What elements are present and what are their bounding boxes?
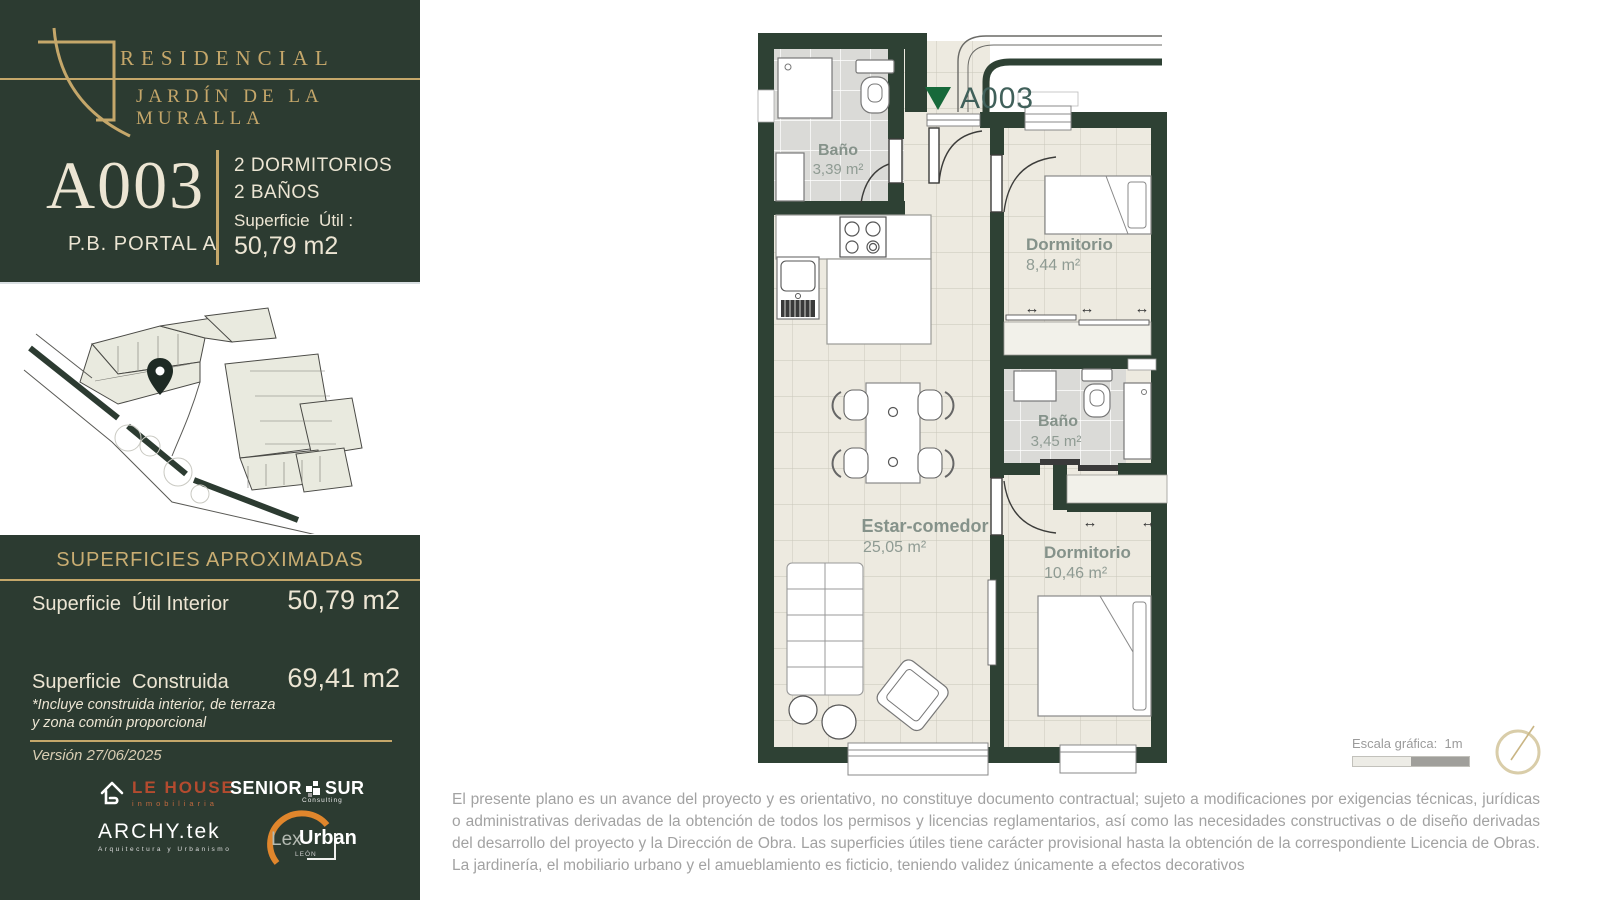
unit-code: A003 <box>46 146 205 225</box>
marker-label: A003 <box>960 82 1034 115</box>
unit-bathrooms: 2 BAÑOS <box>234 182 320 204</box>
unit-portal: P.B. PORTAL A <box>68 233 217 256</box>
site-plan-map <box>0 286 420 534</box>
archytek-sub: Arquitectura y Urbanismo <box>98 846 231 853</box>
lexurban-sub: LEÓN <box>295 851 317 858</box>
svg-text:↔: ↔ <box>1080 300 1095 317</box>
room-bed2-area: 10,46 m² <box>1044 565 1108 582</box>
unit-bedrooms: 2 DORMITORIOS <box>234 155 392 177</box>
room-bed1-name: Dormitorio <box>1026 235 1113 254</box>
scale-bar <box>1352 756 1470 767</box>
svg-text:↔: ↔ <box>1025 300 1040 317</box>
brand-rule <box>0 78 420 80</box>
brand-name-line2: JARDÍN DE LA MURALLA <box>136 86 420 130</box>
room-bath1-name: Baño <box>818 142 858 159</box>
floor-plan: ↔ ↔ ↔ ↔ ↔ Baño 3,39 m² Dormitorio 8,44 m… <box>748 25 1170 785</box>
surface-util-label: Superficie Útil Interior <box>32 593 229 616</box>
bedroom2-furniture <box>1038 596 1151 716</box>
logo-archytek: ARCHY.tek Arquitectura y Urbanismo <box>98 820 231 853</box>
scale-bar-dark-half <box>1411 757 1469 766</box>
lexurban-lex: Lex <box>271 829 302 851</box>
surface-util-value: 50,79 m2 <box>287 585 400 616</box>
surfaces-note: *Incluye construida interior, de terraza… <box>32 696 275 732</box>
room-living-area: 25,05 m² <box>863 539 927 556</box>
lehouse-sub: inmobiliaria <box>132 799 235 808</box>
brand-name-line1: RESIDENCIAL <box>120 46 335 71</box>
compass-icon <box>1488 716 1550 778</box>
svg-text:↔: ↔ <box>1141 514 1156 531</box>
svg-text:↔: ↔ <box>1083 514 1098 531</box>
surfaces-panel: SUPERFICIES APROXIMADAS Superficie Útil … <box>0 535 420 900</box>
bedroom1-furniture <box>1045 176 1151 234</box>
version-text: Versión 27/06/2025 <box>32 747 162 764</box>
pixel-squares-icon <box>305 779 322 798</box>
room-bath2-name: Baño <box>1038 413 1078 430</box>
svg-text:↔: ↔ <box>1135 300 1150 317</box>
brand-panel: RESIDENCIAL JARDÍN DE LA MURALLA A003 P.… <box>0 0 420 284</box>
scale-label: Escala gráfica: 1m <box>1352 736 1463 751</box>
room-bath2-area: 3,45 m² <box>1031 433 1082 450</box>
surface-built-value: 69,41 m2 <box>287 663 400 694</box>
house-icon <box>98 778 126 808</box>
surface-built-label: Superficie Construida <box>32 671 229 694</box>
brand-logo-icon <box>8 8 138 143</box>
room-living-name: Estar-comedor <box>861 516 988 536</box>
unit-surface-label: Superficie Útil : <box>234 211 353 231</box>
archytek-name: ARCHY.tek <box>98 820 231 844</box>
seniorsur-left: SENIOR <box>230 778 302 799</box>
lehouse-name: LE HOUSE <box>132 778 235 798</box>
room-bed1-area: 8,44 m² <box>1026 257 1081 274</box>
logo-lexurban: Lex Urban LEÓN <box>243 807 343 869</box>
logo-lehouse: LE HOUSE inmobiliaria <box>98 778 235 808</box>
lexurban-urban: Urban <box>299 827 357 850</box>
brochure-page: RESIDENCIAL JARDÍN DE LA MURALLA A003 P.… <box>0 0 1600 900</box>
version-rule <box>30 740 392 742</box>
unit-surface-value: 50,79 m2 <box>234 232 338 261</box>
room-bath1-area: 3,39 m² <box>813 161 864 178</box>
disclaimer-text: El presente plano es un avance del proye… <box>452 789 1540 877</box>
room-bed2-name: Dormitorio <box>1044 543 1131 562</box>
shower-tray <box>1124 383 1151 459</box>
surfaces-rule <box>0 579 420 581</box>
scale-bar-light-half <box>1353 757 1411 766</box>
unit-divider <box>216 150 219 265</box>
logo-seniorsur: SENIOR SUR Consulting <box>230 778 365 804</box>
seniorsur-right: SUR <box>325 778 365 799</box>
surfaces-title: SUPERFICIES APROXIMADAS <box>0 549 420 572</box>
